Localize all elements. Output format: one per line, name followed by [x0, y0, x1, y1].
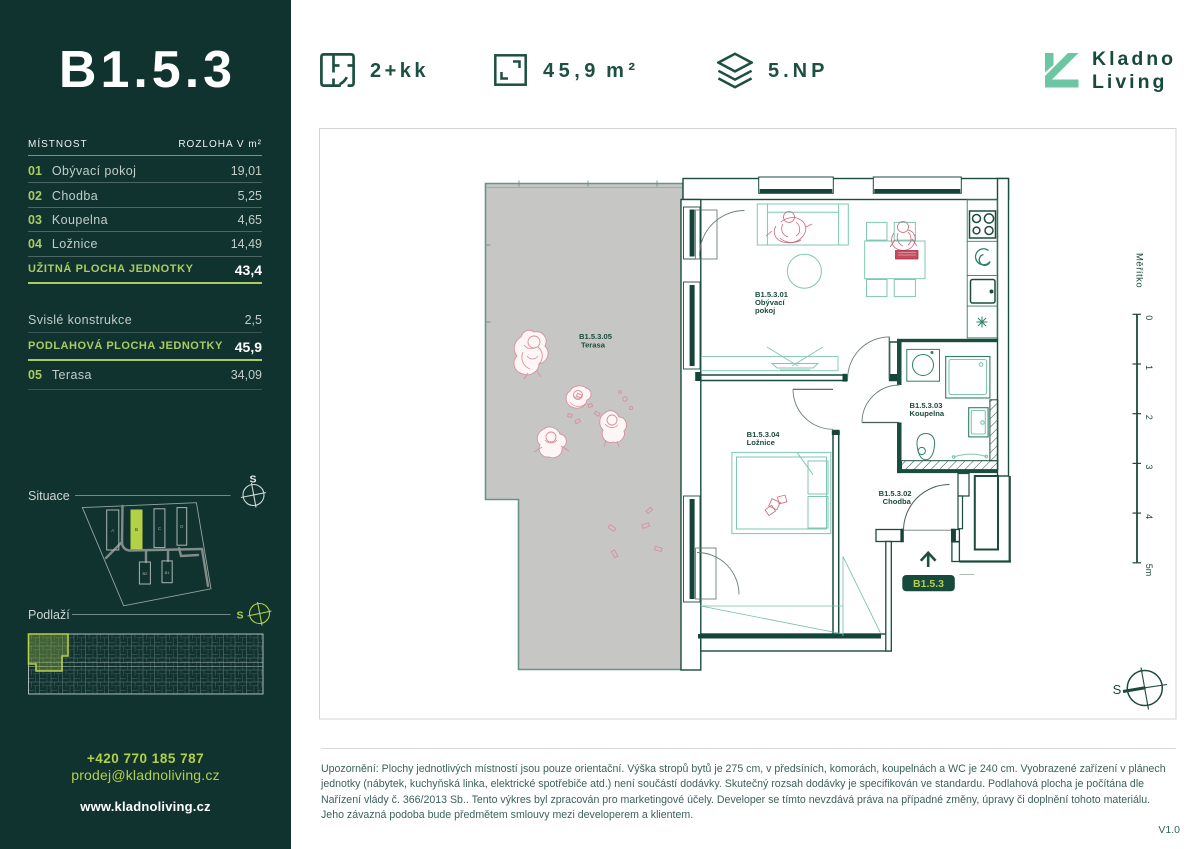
svg-text:Měřítko: Měřítko — [1134, 253, 1145, 288]
svg-text:Ložnice: Ložnice — [747, 438, 775, 447]
svg-text:2: 2 — [1144, 415, 1154, 420]
svg-text:5m: 5m — [1144, 564, 1154, 577]
svg-text:S: S — [1113, 682, 1122, 697]
svg-text:0: 0 — [1144, 315, 1154, 320]
svg-text:1: 1 — [1144, 365, 1154, 370]
svg-text:Koupelna: Koupelna — [910, 409, 945, 418]
svg-text:3: 3 — [1144, 464, 1154, 469]
svg-text:Chodba: Chodba — [883, 497, 912, 506]
svg-text:B1.5.3: B1.5.3 — [913, 578, 944, 590]
svg-text:4: 4 — [1144, 514, 1154, 519]
svg-text:pokoj: pokoj — [755, 306, 775, 315]
svg-text:Terasa: Terasa — [581, 341, 606, 350]
